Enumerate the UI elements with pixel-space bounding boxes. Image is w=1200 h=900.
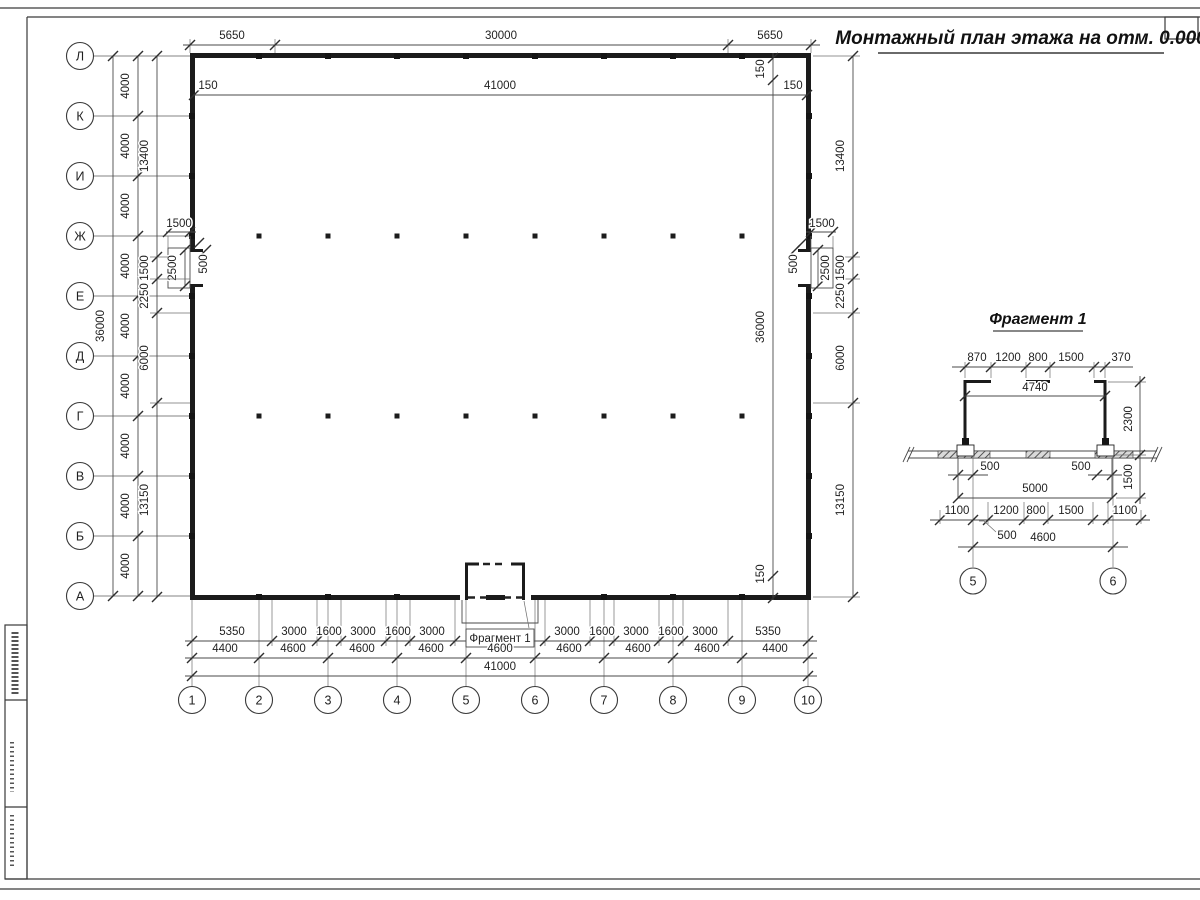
dim-label: 4600 (349, 643, 375, 655)
dim-label: 1100 (945, 505, 970, 517)
right-notch: 1500 2500 500 (788, 218, 838, 291)
dim-label: 30000 (485, 30, 517, 42)
axis-label: К (76, 110, 84, 124)
dim-label: 1600 (589, 626, 615, 638)
dim-label: 500 (198, 254, 210, 273)
dim-label: 4000 (120, 193, 132, 219)
dim-label: 6000 (139, 345, 151, 371)
left-notch: 1500 2500 500 (163, 218, 211, 291)
axis-label: Д (76, 350, 85, 364)
dim-label: 4600 (487, 643, 513, 655)
porch-outline (462, 600, 538, 623)
dim-label: 3000 (350, 626, 376, 638)
left-title-strip (5, 625, 27, 879)
dim-label: 36000 (755, 311, 767, 343)
dim-label: 1500 (1123, 464, 1135, 490)
axis-label: 9 (739, 694, 746, 708)
dim-label: 1500 (835, 255, 847, 281)
axis-label: 1 (189, 694, 196, 708)
dim-label: 4600 (1030, 532, 1056, 544)
dim-label: 4000 (120, 133, 132, 159)
axis-label: А (76, 590, 85, 604)
dim-label: 3000 (281, 626, 307, 638)
axis-label: В (76, 470, 84, 484)
dim-label: 4000 (120, 553, 132, 579)
dim-label: 3000 (692, 626, 718, 638)
dim-label: 1600 (316, 626, 342, 638)
dim-label: 1100 (1113, 505, 1138, 517)
dim-label: 5650 (219, 30, 245, 42)
interior-columns (257, 234, 745, 419)
axis-label: 5 (463, 694, 470, 708)
axis-label: 4 (394, 694, 401, 708)
dim-label: 1500 (1058, 505, 1084, 517)
dim-label: 4000 (120, 433, 132, 459)
dim-label: 5000 (1022, 483, 1048, 495)
dim-label: 4000 (120, 313, 132, 339)
dim-label: 4600 (280, 643, 306, 655)
dim-label: 1200 (993, 505, 1019, 517)
dim-label: 1500 (166, 218, 192, 230)
dim-label: 500 (997, 530, 1016, 542)
dim-label: 13400 (835, 140, 847, 172)
row-axis-bubbles: Л К И Ж Е Д Г В Б А (67, 43, 94, 610)
fragment-detail: Фрагмент 1 870 1200 800 1500 370 4740 (903, 311, 1162, 594)
dim-label: 150 (198, 80, 217, 92)
dim-label: 800 (1028, 352, 1047, 364)
dim-label: 5350 (755, 626, 781, 638)
drawing-title: Монтажный план этажа на отм. 0.000 (835, 28, 1200, 53)
dim-label: 41000 (484, 80, 516, 92)
plan-walls (190, 53, 811, 600)
axis-label: Е (76, 290, 84, 304)
sheet-frame (0, 8, 1200, 889)
dim-label: 150 (755, 564, 767, 583)
axis-label: Л (76, 50, 84, 64)
dim-label: 2250 (139, 283, 151, 309)
dim-label: 1600 (658, 626, 684, 638)
dim-label: 36000 (95, 310, 107, 342)
axis-label: 3 (325, 694, 332, 708)
axis-label: Г (77, 410, 84, 424)
dim-label: 41000 (484, 661, 516, 673)
col-axis-bubbles: 1 2 3 4 5 6 7 8 9 10 (179, 687, 822, 714)
dim-label: 800 (1026, 505, 1045, 517)
dim-label: 370 (1111, 352, 1130, 364)
dim-label: 4000 (120, 373, 132, 399)
dim-label: 1500 (139, 255, 151, 281)
dim-label: 2500 (820, 255, 832, 281)
dim-label: 500 (1071, 461, 1090, 473)
axis-label: 5 (970, 575, 977, 589)
dim-label: 870 (967, 352, 986, 364)
dim-label: 4600 (556, 643, 582, 655)
dim-label: 1200 (995, 352, 1021, 364)
dim-label: 13150 (835, 484, 847, 516)
dim-label: 4000 (120, 73, 132, 99)
entrance-vestibule: Фрагмент 1 (462, 563, 538, 647)
dim-label: 500 (788, 254, 800, 273)
dim-label: 4400 (762, 643, 788, 655)
left-dimensions: 36000 4000 4000 4000 4000 4000 4000 4000… (95, 51, 190, 602)
dim-label: 1600 (385, 626, 411, 638)
dim-label: 4000 (120, 253, 132, 279)
dim-label: 4600 (418, 643, 444, 655)
top-dimensions: 5650 30000 5650 150 41000 150 (183, 30, 820, 100)
dim-label: 1500 (1058, 352, 1084, 364)
dim-label: 150 (783, 80, 802, 92)
dim-label: 3000 (554, 626, 580, 638)
dim-label: 4740 (1022, 382, 1048, 394)
dim-label: 4600 (625, 643, 651, 655)
axis-label: 6 (532, 694, 539, 708)
fragment-title: Фрагмент 1 (989, 311, 1086, 328)
dim-label: 5350 (219, 626, 245, 638)
axis-label: 2 (256, 694, 263, 708)
plan-drawing: Монтажный план этажа на отм. 0.000 (0, 0, 1200, 900)
dim-label: 2250 (835, 283, 847, 309)
dim-label: 150 (755, 59, 767, 78)
wall-column-marks (189, 53, 812, 600)
dim-label: 4400 (212, 643, 238, 655)
dim-label: 13400 (139, 140, 151, 172)
dim-label: 4000 (120, 493, 132, 519)
dim-label: 3000 (623, 626, 649, 638)
axis-label: Б (76, 530, 84, 544)
dim-label: 5650 (757, 30, 783, 42)
axis-label: 7 (601, 694, 608, 708)
axis-label: 8 (670, 694, 677, 708)
dim-label: 2300 (1123, 406, 1135, 432)
axis-label: И (76, 170, 85, 184)
page-title: Монтажный план этажа на отм. 0.000 (835, 28, 1200, 49)
dim-label: 4600 (694, 643, 720, 655)
dim-label: 500 (980, 461, 999, 473)
dim-label: 3000 (419, 626, 445, 638)
drawing-sheet: Монтажный план этажа на отм. 0.000 (0, 0, 1200, 900)
dim-label: 1500 (809, 218, 835, 230)
axis-label: 10 (801, 694, 815, 708)
axis-label: 6 (1110, 575, 1117, 589)
axis-label: Ж (74, 230, 86, 244)
dim-label: 6000 (835, 345, 847, 371)
dim-label: 2500 (167, 255, 179, 281)
dim-label: 13150 (139, 484, 151, 516)
